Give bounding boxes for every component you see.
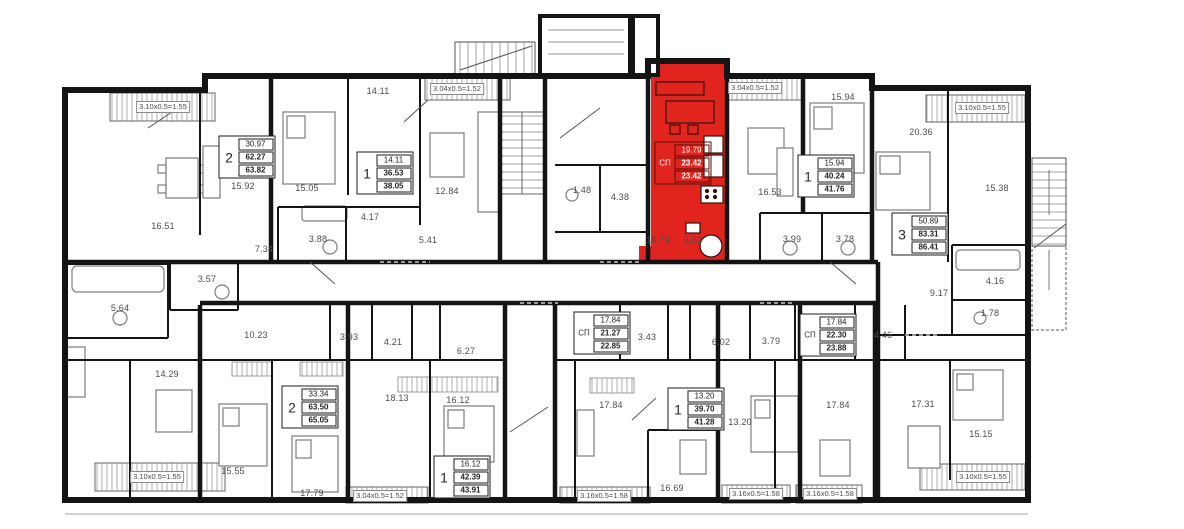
- stamp-room-count: 2: [284, 388, 301, 427]
- stamp-area-values: 17.8421.2722.85: [593, 314, 629, 353]
- room-area-label: 4.46: [874, 330, 892, 340]
- apartment-stamp: 233.3463.5065.05: [282, 386, 339, 429]
- labels-layer: 16.5115.9215.0514.1112.845.417.343.884.1…: [0, 0, 1184, 529]
- stamp-area-value: 36.53: [376, 167, 411, 179]
- apartment-stamp: СП17.8422.3023.88: [800, 314, 857, 357]
- stamp-area-value: 38.05: [376, 180, 411, 192]
- stamp-area-value: 14.11: [376, 154, 411, 166]
- stamp-area-value: 50.89: [911, 215, 946, 227]
- stamp-room-count: СП: [576, 314, 593, 353]
- stamp-room-count: 2: [221, 138, 238, 177]
- room-area-label: 18.13: [385, 393, 409, 403]
- room-area-label: 17.84: [826, 400, 850, 410]
- room-area-label: 4.21: [384, 337, 402, 347]
- balcony-dimension-label: 3.16x0.5=1.58: [803, 488, 857, 500]
- stamp-area-value: 65.05: [301, 414, 336, 426]
- stamp-area-value: 15.94: [817, 157, 852, 169]
- apartment-stamp: 350.8983.3186.41: [892, 213, 949, 256]
- balcony-dimension-label: 3.10x0.5=1.55: [130, 471, 184, 483]
- stamp-room-count: СП: [802, 316, 819, 355]
- room-area-label: 10.23: [244, 330, 268, 340]
- stamp-area-value: 39.70: [687, 403, 722, 415]
- apartment-stamp: СП17.8421.2722.85: [574, 312, 631, 355]
- stamp-area-values: 13.2039.7041.28: [687, 390, 723, 429]
- room-area-label: 4.38: [611, 192, 629, 202]
- room-area-label: 3.93: [340, 332, 358, 342]
- room-area-label: 14.29: [155, 369, 179, 379]
- stamp-area-value: 30.97: [238, 138, 273, 150]
- room-area-label: 15.92: [231, 181, 255, 191]
- room-area-label: 5.64: [111, 303, 129, 313]
- balcony-dimension-label: 3.04x0.5=1.52: [353, 490, 407, 502]
- room-area-label: 15.94: [831, 92, 855, 102]
- stamp-area-value: 16.12: [453, 458, 488, 470]
- room-area-label: 4.17: [361, 212, 379, 222]
- room-area-label: 17.31: [911, 399, 935, 409]
- balcony-dimension-label: 3.16x0.5=1.58: [729, 488, 783, 500]
- room-area-label: 3.57: [198, 274, 216, 284]
- room-area-label: 16.51: [151, 221, 175, 231]
- balcony-dimension-label: 3.10x0.5=1.55: [136, 101, 190, 113]
- stamp-area-values: 15.9440.2441.76: [817, 157, 853, 196]
- floor-plan: 16.5115.9215.0514.1112.845.417.343.884.1…: [0, 0, 1184, 529]
- room-area-label: 20.36: [909, 127, 933, 137]
- stamp-area-value: 40.24: [817, 170, 852, 182]
- apartment-stamp: 116.1242.3943.91: [434, 456, 491, 499]
- balcony-dimension-label: 3.10x0.5=1.55: [955, 102, 1009, 114]
- apartment-stamp: 230.9762.2763.82: [219, 136, 276, 179]
- room-area-label: 1.78: [981, 308, 999, 318]
- stamp-area-values: 33.3463.5065.05: [301, 388, 337, 427]
- apartment-stamp: 114.1136.5338.05: [357, 152, 414, 195]
- stamp-area-value: 62.27: [238, 151, 273, 163]
- balcony-dimension-label: 3.16x0.5=1.58: [577, 490, 631, 502]
- room-area-label: 5.41: [419, 235, 437, 245]
- stamp-area-value: 22.30: [819, 329, 854, 341]
- stamp-area-value: 33.34: [301, 388, 336, 400]
- room-area-label: 1.48: [573, 185, 591, 195]
- room-area-label: 15.38: [985, 183, 1009, 193]
- stamp-area-value: 83.31: [911, 228, 946, 240]
- room-area-label: 12.84: [435, 186, 459, 196]
- room-area-label: 3.43: [638, 332, 656, 342]
- room-area-label: 15.05: [295, 183, 319, 193]
- room-area-label: 4.16: [986, 276, 1004, 286]
- stamp-area-value: 43.91: [453, 484, 488, 496]
- room-area-label: 3.78: [836, 234, 854, 244]
- stamp-area-values: 17.8422.3023.88: [819, 316, 855, 355]
- room-area-label: 15.55: [221, 466, 245, 476]
- room-area-label: 3.79: [762, 336, 780, 346]
- room-area-label: 6.02: [712, 337, 730, 347]
- room-area-label: 14.11: [367, 86, 390, 96]
- selected-apartment-region[interactable]: [651, 63, 725, 262]
- stamp-area-value: 63.82: [238, 164, 273, 176]
- stamp-area-value: 13.20: [687, 390, 722, 402]
- room-area-label: 13.20: [728, 417, 752, 427]
- stamp-area-values: 14.1136.5338.05: [376, 154, 412, 193]
- stamp-area-value: 17.84: [593, 314, 628, 326]
- stamp-area-value: 23.88: [819, 342, 854, 354]
- stamp-area-value: 22.85: [593, 340, 628, 352]
- room-area-label: 17.84: [599, 400, 623, 410]
- stamp-area-value: 41.28: [687, 416, 722, 428]
- stamp-room-count: 1: [359, 154, 376, 193]
- room-area-label: 16.69: [660, 483, 684, 493]
- stamp-area-values: 50.8983.3186.41: [911, 215, 947, 254]
- room-area-label: 17.79: [300, 488, 324, 498]
- stamp-room-count: 1: [670, 390, 687, 429]
- stamp-area-value: 41.76: [817, 183, 852, 195]
- apartment-stamp: 115.9440.2441.76: [798, 155, 855, 198]
- balcony-dimension-label: 3.10x0.5=1.55: [956, 471, 1010, 483]
- stamp-area-value: 86.41: [911, 241, 946, 253]
- stamp-area-value: 21.27: [593, 327, 628, 339]
- stamp-area-values: 16.1242.3943.91: [453, 458, 489, 497]
- stamp-area-values: 30.9762.2763.82: [238, 138, 274, 177]
- room-area-label: 15.15: [969, 429, 993, 439]
- balcony-dimension-label: 3.04x0.5=1.52: [728, 82, 782, 94]
- stamp-area-value: 42.39: [453, 471, 488, 483]
- room-area-label: 3.99: [783, 234, 801, 244]
- stamp-area-value: 17.84: [819, 316, 854, 328]
- stamp-area-value: 63.50: [301, 401, 336, 413]
- room-area-label: 16.12: [446, 395, 470, 405]
- balcony-dimension-label: 3.04x0.5=1.52: [430, 83, 484, 95]
- room-area-label: 7.34: [255, 244, 273, 254]
- stamp-room-count: 3: [894, 215, 911, 254]
- stamp-room-count: 1: [800, 157, 817, 196]
- room-area-label: 16.53: [758, 187, 782, 197]
- room-area-label: 6.27: [457, 346, 475, 356]
- room-area-label: 3.88: [309, 234, 327, 244]
- room-area-label: 9.17: [930, 288, 948, 298]
- stamp-room-count: 1: [436, 458, 453, 497]
- apartment-stamp: 113.2039.7041.28: [668, 388, 725, 431]
